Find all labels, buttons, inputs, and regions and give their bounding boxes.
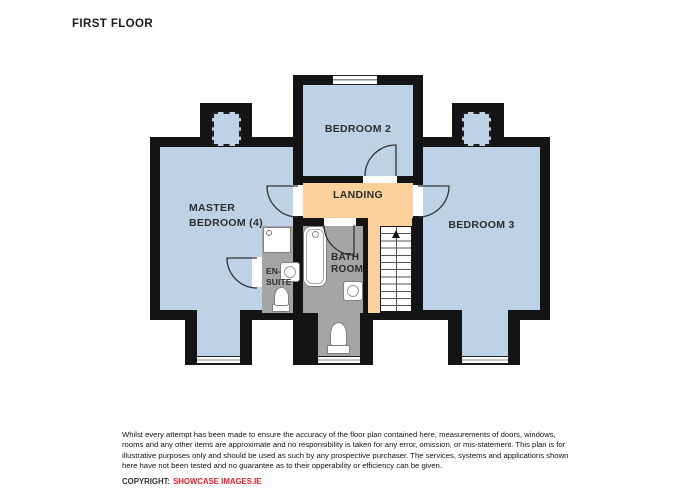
label-landing: LANDING [303,189,413,201]
door-gap-master [293,185,303,216]
chimney-right [462,112,491,146]
label-ensuite: EN- SUITE [266,266,292,287]
sink-basin-icon [347,285,359,297]
label-bedroom2: BEDROOM 2 [303,123,413,135]
staircase [380,226,412,312]
room-landing-stair-head [368,218,412,226]
bathroom-toilet-bowl [330,322,347,346]
window-bedroom3-bay [462,356,508,364]
bathtub [303,226,327,287]
window-bedroom2 [333,75,377,85]
door-gap-bathroom [324,218,356,226]
copyright-line: COPYRIGHT:SHOWCASE IMAGES.IE [122,477,261,486]
floor-plan-page: FIRST FLOOR [0,0,700,495]
label-bathroom: BATH ROOM [331,252,363,275]
bathroom-toilet-tank [327,345,350,354]
copyright-brand: SHOWCASE IMAGES.IE [173,477,261,486]
door-gap-ensuite [252,257,262,287]
floor-plan: BEDROOM 2 LANDING MASTER BEDROOM (4) BED… [0,0,700,495]
stairs-up-arrow-icon [392,230,400,238]
door-gap-bedroom2 [363,176,397,183]
ensuite-shower [263,227,291,253]
chimney-left [212,112,241,146]
room-master-bay [197,310,240,356]
window-bathroom [318,356,360,364]
bathroom-sink [343,281,363,301]
stair-midline [396,227,397,311]
room-landing-strip [368,226,380,313]
shower-head-icon [266,230,272,236]
bathtub-drain-icon [312,231,319,238]
label-master: MASTER BEDROOM (4) [189,201,263,230]
ensuite-toilet-bowl [274,287,289,306]
room-bedroom3-bay [462,310,508,356]
door-gap-bedroom3 [413,185,423,216]
window-master-bay [197,356,240,364]
label-bedroom3: BEDROOM 3 [423,219,540,231]
disclaimer-text: Whilst every attempt has been made to en… [122,430,568,472]
copyright-label: COPYRIGHT: [122,477,170,486]
